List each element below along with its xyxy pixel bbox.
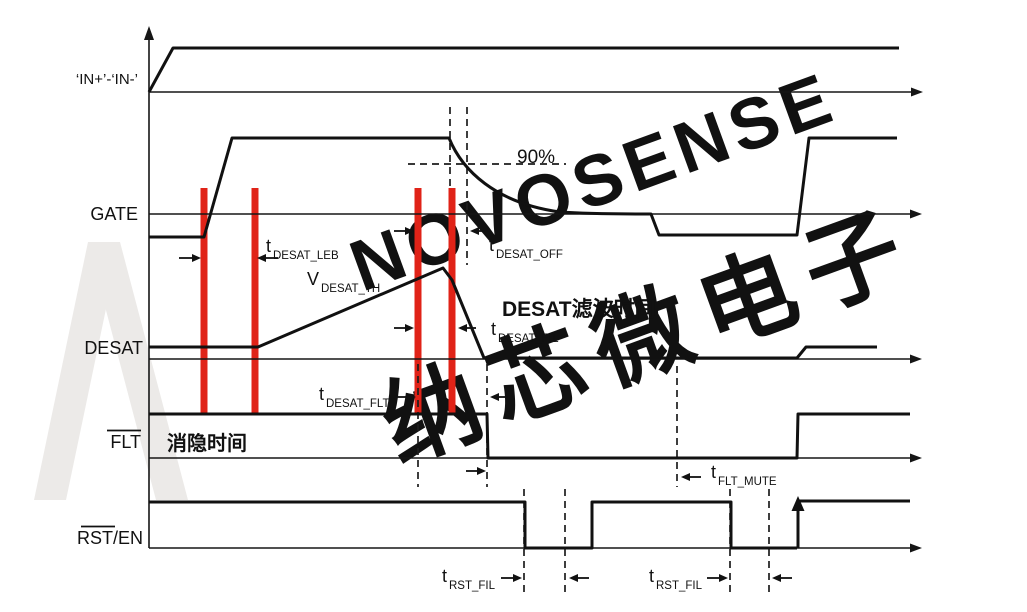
vertical-axis-arrowhead [144,26,154,40]
t-rst-fil-1-subscript: RST_FIL [449,580,496,592]
flt-signal-label: FLT [110,432,141,452]
desat-signal-label: DESAT [84,338,143,358]
desat-timing-diagram: NOVOSENSE 纳芯微电子 [0,0,1027,612]
t-desat-fil-symbol: t [491,319,496,339]
t-rst-fil-2-subscript: RST_FIL [656,580,703,592]
t-desat-leb-symbol: t [266,236,271,256]
v-desat-th-subscript: DESAT_TH [321,283,380,295]
t-desat-fil-subscript: DESAT_FIL [498,333,559,345]
arrow-fil-right-head [405,324,414,332]
blanking-bar-4 [449,188,456,414]
v-desat-th-symbol: V [307,269,319,289]
t-desat-off-subscript: DESAT_OFF [496,249,563,261]
arrow-rstfil1-left-head [569,574,578,582]
rst-signal-label: RST/EN [77,528,143,548]
t-rst-fil-2-symbol: t [649,566,654,586]
arrow-fil-left-head [458,324,467,332]
in-signal-label: ‘IN+’-‘IN-’ [76,71,138,88]
in-axis-arrowhead [911,88,923,97]
arrow-leb-right-head [192,254,201,262]
gate-90pct-label: 90% [517,147,555,168]
t-rst-fil-1-symbol: t [442,566,447,586]
rst-rise-arrowhead [792,496,805,511]
t-desat-flt-symbol: t [319,384,324,404]
arrow-rstfil2-left-head [772,574,781,582]
blanking-time-note: 消隐时间 [167,431,247,455]
rst-axis-arrowhead [910,544,922,553]
timing-diagram-page: NOVOSENSE 纳芯微电子 [0,0,1027,612]
t-flt-mute-symbol: t [711,462,716,482]
blanking-bar-1 [201,188,208,414]
flt-axis-arrowhead [910,454,922,463]
desat-filter-time-note: DESAT滤波时间 [502,297,656,321]
arrow-mute-start-head [477,467,486,475]
blanking-bar-2 [252,188,259,414]
arrow-rstfil1-right-head [513,574,522,582]
gate-signal-label: GATE [90,204,138,224]
t-desat-flt-subscript: DESAT_FLT [326,398,389,410]
t-desat-off-symbol: t [489,235,494,255]
desat-axis-arrowhead [910,355,922,364]
watermark-logo-stroke-right [88,242,188,500]
t-flt-mute-subscript: FLT_MUTE [718,476,777,488]
rst-waveform [149,502,797,548]
t-desat-leb-subscript: DESAT_LEB [273,250,339,262]
gate-axis-arrowhead [910,210,922,219]
arrow-rstfil2-right-head [719,574,728,582]
arrow-mute-end-head [681,473,690,481]
